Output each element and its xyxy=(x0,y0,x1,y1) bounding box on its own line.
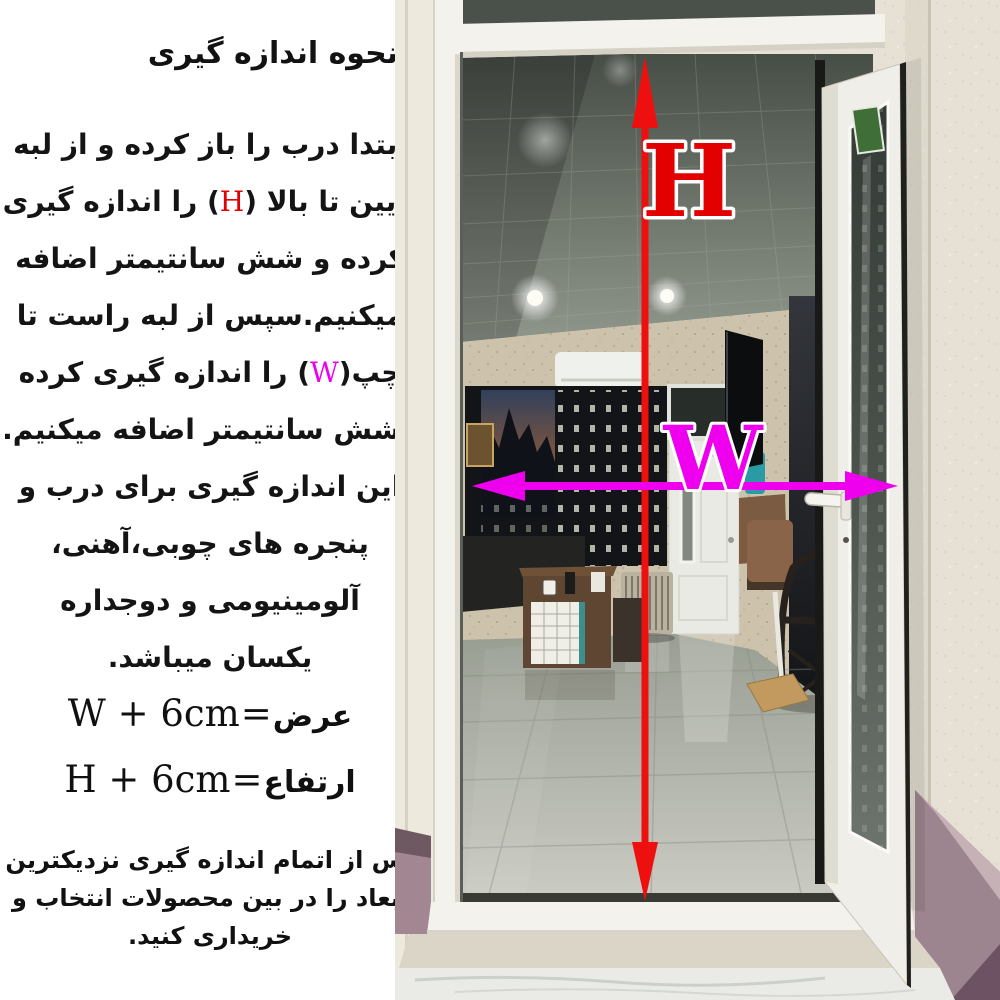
measurement-photo: H W xyxy=(395,0,1000,1000)
ceiling-light-glare xyxy=(517,112,573,168)
open-door xyxy=(805,58,925,988)
instruction-line: چپ(W) را اندازه گیری کرده xyxy=(0,344,420,401)
instructions-panel: نحوه اندازه گیری ابتدا درب را باز کرده و… xyxy=(0,0,420,1000)
desk-calendar xyxy=(531,602,585,664)
height-label: H xyxy=(642,122,736,240)
wall-picture xyxy=(467,424,493,466)
instruction-line: پایین تا بالا (H) را اندازه گیری xyxy=(0,173,420,230)
step-top xyxy=(399,934,940,968)
width-symbol: W xyxy=(310,356,339,389)
ceiling-light xyxy=(660,289,674,303)
instruction-line: وشش سانتیمتر اضافه میکنیم. xyxy=(0,401,420,458)
page-title: نحوه اندازه گیری xyxy=(148,36,398,71)
keyhole xyxy=(843,537,849,543)
instruction-line: پنجره های چوبی،آهنی، xyxy=(0,515,420,572)
mug xyxy=(543,580,556,595)
width-formula: عرض=W + 6cm xyxy=(0,692,420,735)
instruction-line: کرده و شش سانتیمتر اضافه xyxy=(0,230,420,287)
instruction-line: آلومینیومی و دوجداره xyxy=(0,572,420,629)
purchase-note: پس از اتمام اندازه گیری نزدیکترین ابعاد … xyxy=(0,841,420,955)
measurement-instructions: ابتدا درب را باز کرده و از لبه پایین تا … xyxy=(0,116,420,686)
instruction-line: این اندازه گیری برای درب و xyxy=(0,458,420,515)
instruction-line: ابتدا درب را باز کرده و از لبه xyxy=(0,116,420,173)
height-formula: ارتفاع=H + 6cm xyxy=(0,758,420,801)
instruction-line: یکسان میباشد. xyxy=(0,629,420,686)
instruction-line: میکنیم.سپس از لبه راست تا xyxy=(0,287,420,344)
interior-door-knob xyxy=(728,537,734,543)
width-label: W xyxy=(663,406,764,510)
ceiling-light xyxy=(527,290,543,306)
height-symbol: H xyxy=(220,185,244,218)
door-sill xyxy=(427,902,915,934)
glass-reflection-picture xyxy=(852,106,884,153)
